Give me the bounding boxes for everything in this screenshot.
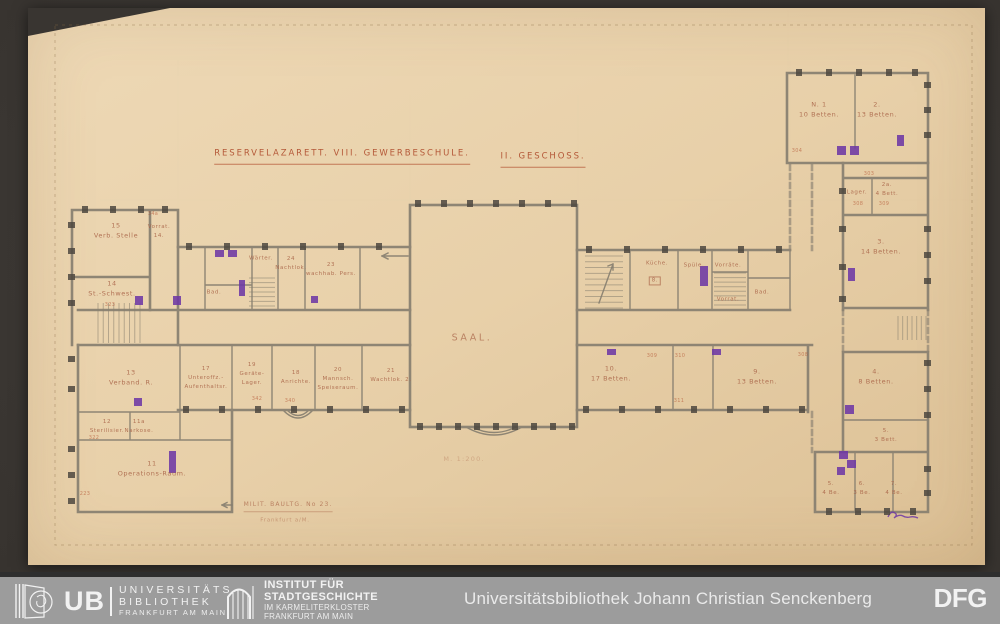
door-number: 223 [80,491,90,497]
door-number: 342 [252,396,262,402]
door-number: 34a [148,211,158,217]
ub-line2: BIBLIOTHEK [119,596,233,608]
institute-logo-block: INSTITUT FÜR STADTGESCHICHTE IM KARMELIT… [224,579,378,621]
room-label-4: 4. 8 Betten. [844,367,908,388]
door-number: 309 [647,353,657,359]
room-label-wachhabende: 23 wachhab. Pers. [305,261,357,279]
caption-line2: Frankfurt a/M. [260,517,310,526]
door-number: 308 [853,201,863,207]
room-label-5b: 5. 4 Be. [817,480,845,498]
plan-title: RESERVELAZARETT. VIII. GEWERBESCHULE. [214,148,470,165]
institute-line1: INSTITUT FÜR [264,579,378,591]
room-label-kueche: Küche. [637,260,677,269]
door-number: 322 [89,435,99,441]
ub-acronym: UB [64,588,105,615]
room-label-10: 10. 17 Betten. [576,364,646,385]
door-number: 308 [798,352,808,358]
room-label-2a: 2a. 4 Bett. [871,181,903,199]
room-label-saal: SAAL. [452,330,493,345]
institute-line3: IM KARMELITERKLOSTER [264,603,378,612]
door-number: 310 [675,353,685,359]
room-label-vorrat-right: Vorrat. [713,296,743,305]
room-label-geraetelager: 19 Geräte- Lager. [232,361,272,387]
room-label-3: 3. 14 Betten. [849,237,913,258]
institute-line2: STADTGESCHICHTE [264,591,378,603]
door-number: 304 [792,148,802,154]
room-label-stationsschwester: 14 St.-Schwest. [81,279,143,300]
ub-wordmark: UNIVERSITÄTS BIBLIOTHEK FRANKFURT AM MAI… [119,584,233,618]
room-label-5: 5. 3 Bett. [865,427,907,445]
room-label-n1: N. 1 10 Betten. [789,100,849,121]
room-label-vorraete: Vorräte. [711,262,745,271]
library-name: Universitätsbibliothek Johann Christian … [464,589,872,609]
ub-line1: UNIVERSITÄTS [119,584,233,596]
ub-separator [110,587,112,616]
scale-label: M. 1:200. [443,454,484,464]
footer-bar: UB UNIVERSITÄTS BIBLIOTHEK FRANKFURT AM … [0,572,1000,624]
door-number: 323 [105,302,115,308]
caption-line1: MILIT. BAULTG. No 23. [244,500,333,512]
ub-logo: UB UNIVERSITÄTS BIBLIOTHEK FRANKFURT AM … [14,582,233,620]
ub-line3: FRANKFURT AM MAIN [119,608,233,618]
room-label-lager: Lager. [839,189,875,198]
dfg-logo: DFG [934,583,987,614]
room-label-vorrat14: Vorrat. 14. [142,223,176,241]
gothic-window-icon [224,580,256,620]
room-label-verbandstelle: 15 Verb. Stelle [87,221,145,242]
room-label-spuele: Spüle. [679,262,709,271]
door-number: 340 [285,398,295,404]
door-number: 303 [864,171,874,177]
room-number-kueche: 8. [649,276,661,285]
room-labels-layer: RESERVELAZARETT. VIII. GEWERBESCHULE. II… [0,0,1000,572]
room-label-7: 7. 4 Be. [880,480,908,498]
room-label-2: 2. 13 Betten. [847,100,907,121]
door-number: 311 [674,398,684,404]
institute-line4: FRANKFURT AM MAIN [264,612,378,621]
room-label-wachtlokal: 21 Wachtlok. 2. [366,367,416,385]
room-label-bad-left: Bad. [203,289,225,298]
room-label-6: 6. 3 Be. [848,480,876,498]
institute-wordmark: INSTITUT FÜR STADTGESCHICHTE IM KARMELIT… [264,579,378,621]
footer-top-strip [0,572,1000,577]
goethe-portrait-icon [14,582,62,620]
door-number: 309 [879,201,889,207]
room-label-bad-right: Bad. [752,289,772,298]
room-label-verbandraum: 13 Verband. R. [103,368,159,389]
room-label-speiseraum: 20 Mannsch. Speiseraum. [310,366,366,392]
room-label-operationsraum: 11 Operations-Raum. [104,459,200,480]
room-label-narkose: 11a Narkose. [121,418,157,436]
room-label-9: 9. 13 Betten. [722,367,792,388]
floor-label: II. GESCHOSS. [501,151,586,168]
room-label-aufenthaltsraum: 17 Unteroffz.- Aufenthaltsr. [176,365,236,391]
